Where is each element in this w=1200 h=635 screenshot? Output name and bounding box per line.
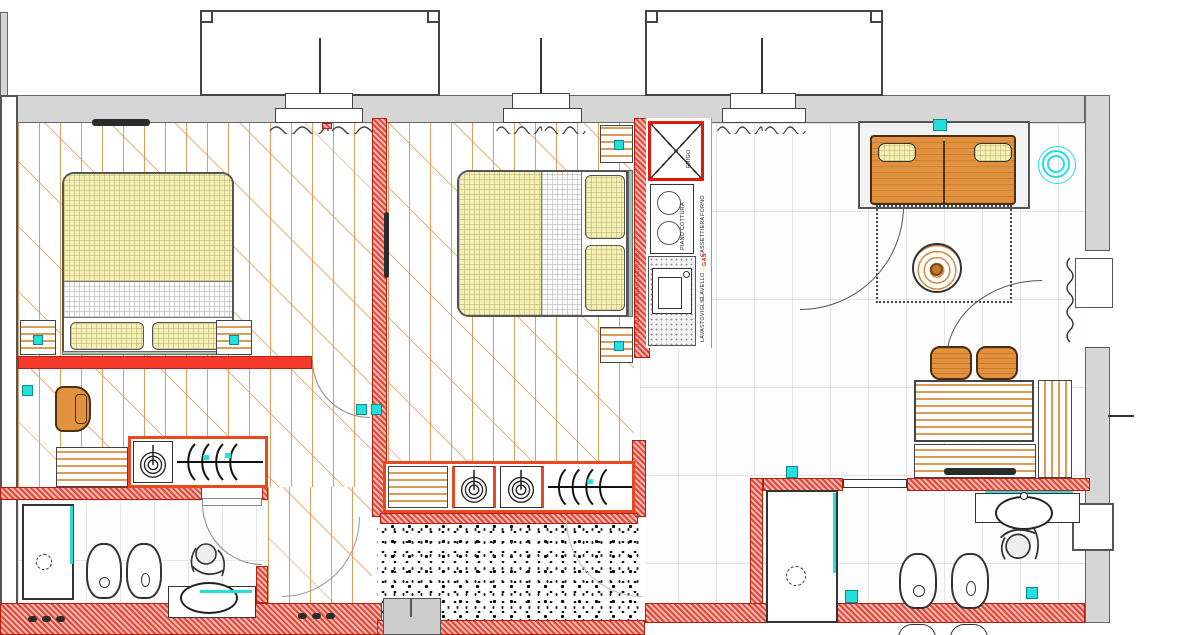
right-wall-tick bbox=[1108, 415, 1134, 417]
bath1-shower-drain bbox=[36, 554, 52, 570]
bay-window-1-corner-left bbox=[200, 10, 213, 23]
living-pouf-table bbox=[912, 243, 962, 293]
wall-bath1-top-right bbox=[262, 487, 268, 500]
kitchen-dishwasher-label: LAVASTOVIGLIE bbox=[700, 300, 706, 342]
kitchen-cooktop-label: PIANO COTTURA bbox=[680, 188, 694, 250]
toilet-drain-dot bbox=[99, 577, 110, 588]
living-side-cabinet bbox=[1038, 380, 1072, 478]
wardrobe2-drawer-towels-b bbox=[500, 466, 544, 508]
ceiling-lamp-icon bbox=[1038, 146, 1076, 184]
bath1-bidet bbox=[126, 543, 162, 599]
bedroom1-double-bed bbox=[62, 172, 234, 354]
floor-plan-canvas: LETTO MATRIMONIALE 160X200 FRIGO PIANO C… bbox=[0, 0, 1200, 635]
bath1-shower-glass bbox=[70, 506, 73, 564]
bottom-wall-right bbox=[645, 603, 1085, 623]
bay-window-2-corner-left bbox=[645, 10, 658, 23]
ceiling-lamp-ring3 bbox=[1047, 155, 1065, 173]
wardrobe2-shelf-unit bbox=[388, 466, 448, 508]
living-desk bbox=[914, 380, 1034, 442]
spotlight-icon-bath2-b bbox=[1026, 587, 1038, 599]
dressing-tub-chair bbox=[55, 386, 91, 432]
bath2-shower-drain bbox=[786, 566, 806, 586]
bay-window-1-corner-right bbox=[427, 10, 440, 23]
bedroom1-radiator bbox=[92, 119, 150, 126]
bath2-shower bbox=[766, 490, 838, 623]
bath2-toilet bbox=[899, 553, 937, 609]
window-2-sill-inner bbox=[512, 93, 570, 109]
section-mark-2 bbox=[42, 616, 51, 622]
bath1-sink bbox=[180, 582, 238, 614]
bed1-pillow-left bbox=[70, 322, 144, 350]
sofa-pillow-left bbox=[878, 143, 916, 162]
entrance-mat bbox=[383, 598, 441, 635]
bath1-cyan-strip bbox=[200, 590, 252, 593]
top-left-wall-stub bbox=[0, 12, 8, 96]
wardrobe1-hanger-section bbox=[177, 441, 263, 483]
bed2-baseboard bbox=[628, 170, 633, 317]
wall-bedroom1-bedroom2 bbox=[372, 118, 387, 517]
wall-bath1-top-left bbox=[0, 487, 202, 500]
bay-window-2 bbox=[645, 10, 883, 96]
bed2-sheet-fold bbox=[542, 172, 582, 315]
sofa-pillow-right bbox=[974, 143, 1012, 162]
sink-faucet-dot bbox=[683, 271, 690, 278]
section-mark-5 bbox=[312, 613, 321, 619]
kitchen-oven-label: FORNO bbox=[700, 186, 706, 216]
dressing-desk bbox=[56, 447, 128, 487]
bed2-pillow-bottom bbox=[585, 245, 625, 311]
desk-stool-left bbox=[930, 346, 972, 380]
wardrobe1-frame bbox=[128, 436, 268, 488]
sofa bbox=[870, 135, 1016, 205]
chair-seat-line bbox=[75, 394, 87, 424]
below-plan-fixture-partial-2 bbox=[950, 624, 988, 635]
lamp-icon-nightstand2-bottom bbox=[614, 341, 624, 351]
bidet-tap-dot bbox=[141, 573, 150, 587]
lamp-icon-nightstand1-left bbox=[33, 335, 43, 345]
kitchen-sink bbox=[652, 268, 692, 314]
below-plan-fixture-partial-1 bbox=[898, 624, 936, 635]
burner-1 bbox=[657, 191, 681, 215]
burner-2 bbox=[657, 221, 681, 245]
bed1-sheet-fold bbox=[64, 282, 232, 318]
spotlight-icon-sofa bbox=[933, 119, 947, 131]
sink-basin bbox=[658, 277, 682, 309]
entrance-mat-divider bbox=[410, 599, 412, 617]
wall-bath2-left bbox=[750, 478, 763, 623]
section-mark-1 bbox=[28, 616, 37, 622]
bed2-blanket bbox=[459, 172, 542, 315]
wardrobe2-drawer-towels-a bbox=[452, 466, 496, 508]
top-wall-red-patch bbox=[322, 123, 332, 129]
bed1-pillow-right bbox=[152, 322, 226, 350]
bath1-door-leaf bbox=[202, 498, 262, 506]
kitchen-fridge bbox=[648, 121, 704, 181]
spotlight-icon-bedroom2-b bbox=[371, 404, 382, 415]
section-mark-6 bbox=[326, 613, 335, 619]
pouf-spiral-center bbox=[930, 263, 943, 276]
section-mark-3 bbox=[56, 616, 65, 622]
kitchen-fridge-label: FRIGO bbox=[686, 136, 692, 168]
bath2-faucet-dot bbox=[1020, 492, 1028, 500]
kitchen-sink-label: LAVELLO bbox=[700, 268, 706, 298]
bay-window-2-corner-right bbox=[870, 10, 883, 23]
bedroom2-wall-mirror bbox=[384, 212, 389, 278]
wall-bath1-right-stub bbox=[256, 566, 268, 603]
window-3-sill-inner bbox=[730, 93, 796, 109]
wall-bath2-top-b bbox=[907, 478, 1090, 491]
bath2-toilet-dot bbox=[913, 585, 925, 597]
bedroom2-double-bed bbox=[457, 170, 628, 317]
bath2-door-leaf bbox=[843, 479, 907, 488]
lamp-icon-nightstand2-top bbox=[614, 140, 624, 150]
bed1-blanket bbox=[64, 174, 232, 282]
section-mark-4 bbox=[298, 613, 307, 619]
bath1-shower bbox=[22, 504, 74, 600]
bath2-person-figure bbox=[992, 518, 1044, 568]
bath2-bidet-dot bbox=[966, 581, 976, 596]
desk-front-bar bbox=[944, 468, 1016, 475]
bath2-shower-glass bbox=[833, 493, 836, 573]
spotlight-icon-bedroom2 bbox=[356, 404, 367, 415]
bed1-baseboard bbox=[62, 351, 234, 355]
desk-stool-right bbox=[976, 346, 1018, 380]
bath1-toilet bbox=[86, 543, 122, 599]
bath2-bidet bbox=[951, 553, 989, 609]
wall-bed1-headboard bbox=[18, 356, 312, 369]
spotlight-icon-hall-living bbox=[786, 466, 798, 478]
spotlight-icon-dressing bbox=[22, 385, 33, 396]
curtain-wave-window3 bbox=[716, 121, 810, 133]
sofa-center-seam bbox=[943, 141, 945, 203]
left-exterior-wall bbox=[0, 95, 18, 623]
wardrobe2-hanger-section bbox=[548, 466, 632, 508]
window-1-sill-inner bbox=[285, 93, 353, 109]
wardrobe1-drawer-towels bbox=[133, 441, 173, 483]
lamp-icon-nightstand1-right bbox=[229, 335, 239, 345]
right-wall-window-frame bbox=[1075, 258, 1113, 308]
bed-wall-annotation: LETTO MATRIMONIALE 160X200 bbox=[636, 165, 642, 345]
kitchen-gas-label: GAS bbox=[703, 252, 709, 266]
curtain-wave-window2 bbox=[495, 121, 590, 133]
right-wall-insulation-squiggle bbox=[1064, 256, 1076, 348]
spotlight-icon-bath2-a bbox=[845, 590, 858, 603]
bed2-pillow-top bbox=[585, 175, 625, 239]
wardrobe2-frame bbox=[383, 461, 635, 513]
